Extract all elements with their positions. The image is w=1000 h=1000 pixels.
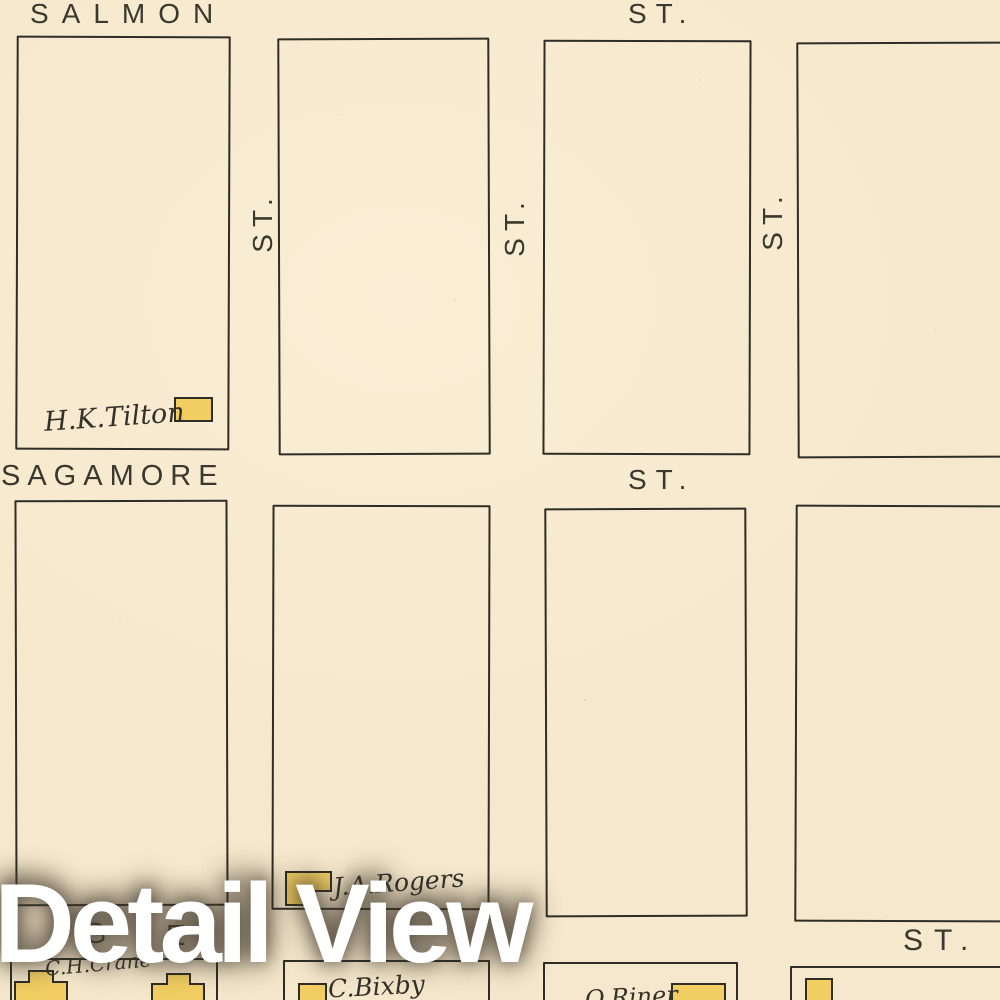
atlas-map-sheet: SALMON ST. ST. ST. ST. SAGAMORE ST. G E … — [0, 0, 1000, 1000]
detail-view-watermark: Detail View — [0, 868, 528, 980]
owner-label-hk-tilton: H.K.Tilton — [43, 397, 185, 438]
owner-labels-layer: H.K.Tilton J.A.Rogers C.H.Crane C.Bixby … — [0, 0, 1000, 1000]
owner-label-o-riner: O.Riner — [584, 981, 678, 1000]
